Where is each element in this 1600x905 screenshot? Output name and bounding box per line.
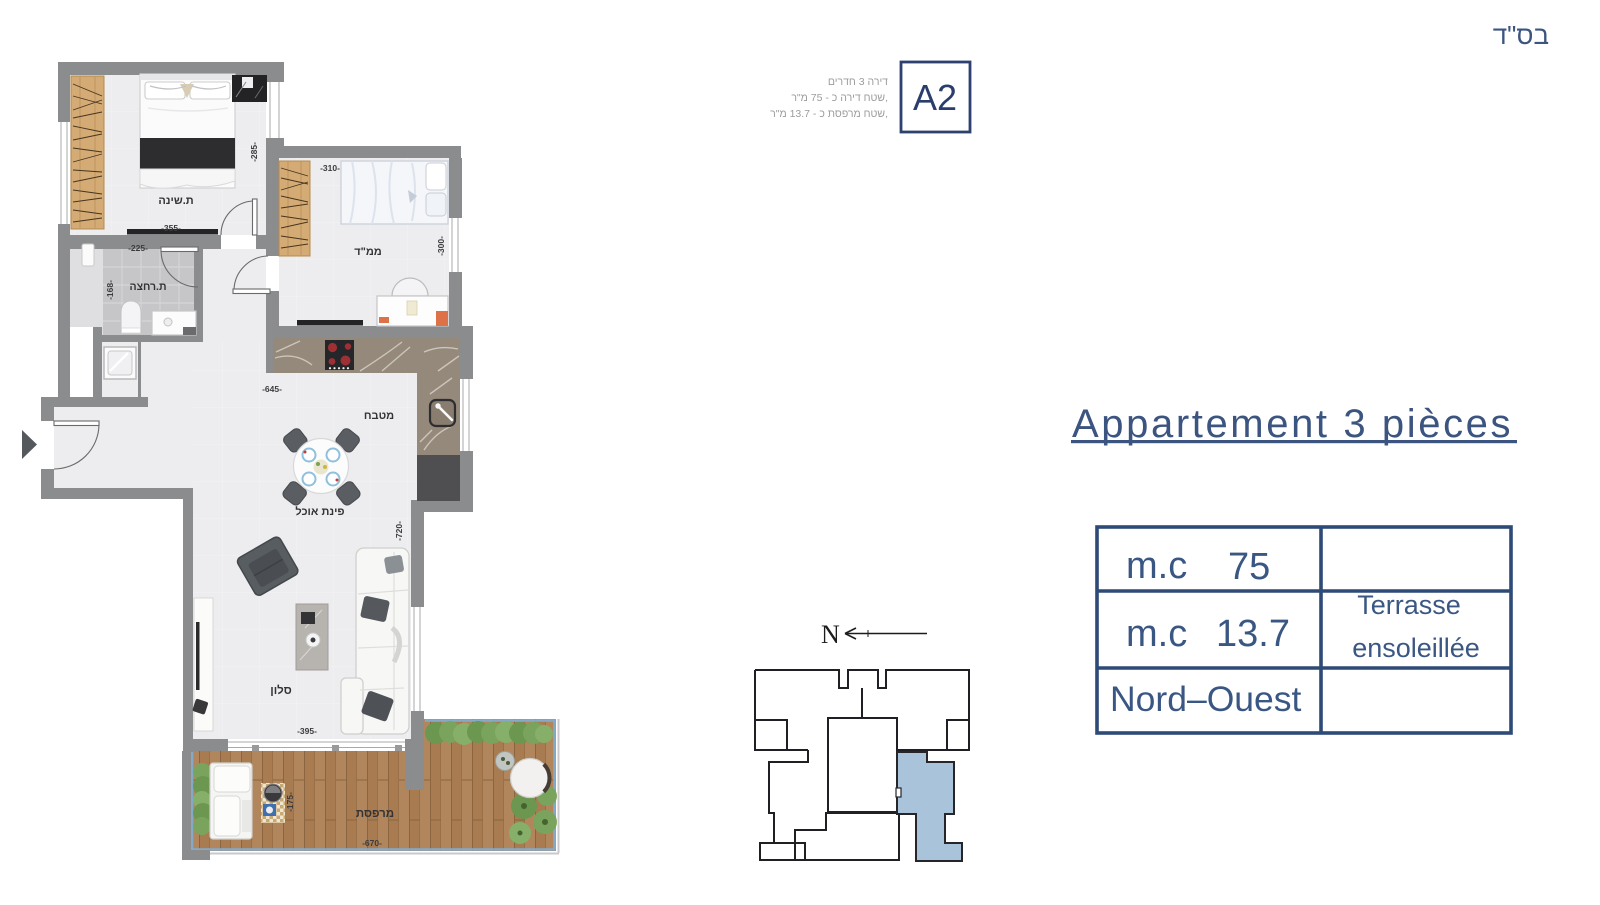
- svg-text:בס"ד: בס"ד: [1493, 20, 1549, 50]
- svg-text:A2: A2: [913, 77, 957, 118]
- svg-text:-285-: -285-: [249, 142, 259, 162]
- svg-text:סלון: סלון: [270, 684, 292, 697]
- svg-text:Nord–Ouest: Nord–Ouest: [1110, 679, 1302, 719]
- svg-text:שטח מרפסת כ - 13.7 מ"ר,: שטח מרפסת כ - 13.7 מ"ר,: [770, 108, 888, 120]
- svg-text:-310-: -310-: [320, 163, 340, 173]
- svg-text:מרפסת: מרפסת: [356, 808, 394, 820]
- svg-text:-720-: -720-: [394, 521, 404, 541]
- svg-text:N: N: [821, 620, 840, 649]
- svg-text:ת.שינה: ת.שינה: [158, 195, 193, 207]
- svg-text:דירה 3 חדרים: דירה 3 חדרים: [828, 76, 888, 88]
- svg-text:ת.רחצה: ת.רחצה: [129, 281, 166, 293]
- svg-text:שטח דירה כ - 75 מ"ר,: שטח דירה כ - 75 מ"ר,: [791, 92, 888, 104]
- svg-text:מטבח: מטבח: [364, 410, 394, 422]
- svg-text:-355-: -355-: [161, 223, 181, 233]
- svg-text:-645-: -645-: [262, 384, 282, 394]
- svg-text:פינת אוכל: פינת אוכל: [295, 505, 344, 518]
- svg-text:-395-: -395-: [297, 726, 317, 736]
- svg-text:-300-: -300-: [436, 236, 446, 256]
- svg-text:m.c: m.c: [1126, 545, 1187, 587]
- svg-text:Appartement 3 pièces: Appartement 3 pièces: [1072, 402, 1513, 446]
- svg-text:ensoleillée: ensoleillée: [1352, 633, 1480, 663]
- svg-text:Terrasse: Terrasse: [1357, 590, 1461, 620]
- svg-text:75: 75: [1228, 546, 1270, 588]
- svg-text:-175-: -175-: [285, 792, 295, 812]
- svg-text:-670-: -670-: [362, 838, 382, 848]
- svg-text:-168-: -168-: [105, 280, 115, 300]
- svg-text:ממ"ד: ממ"ד: [354, 246, 382, 258]
- svg-text:m.c: m.c: [1126, 613, 1187, 655]
- svg-text:13.7: 13.7: [1216, 613, 1290, 655]
- svg-text:-225-: -225-: [128, 243, 148, 253]
